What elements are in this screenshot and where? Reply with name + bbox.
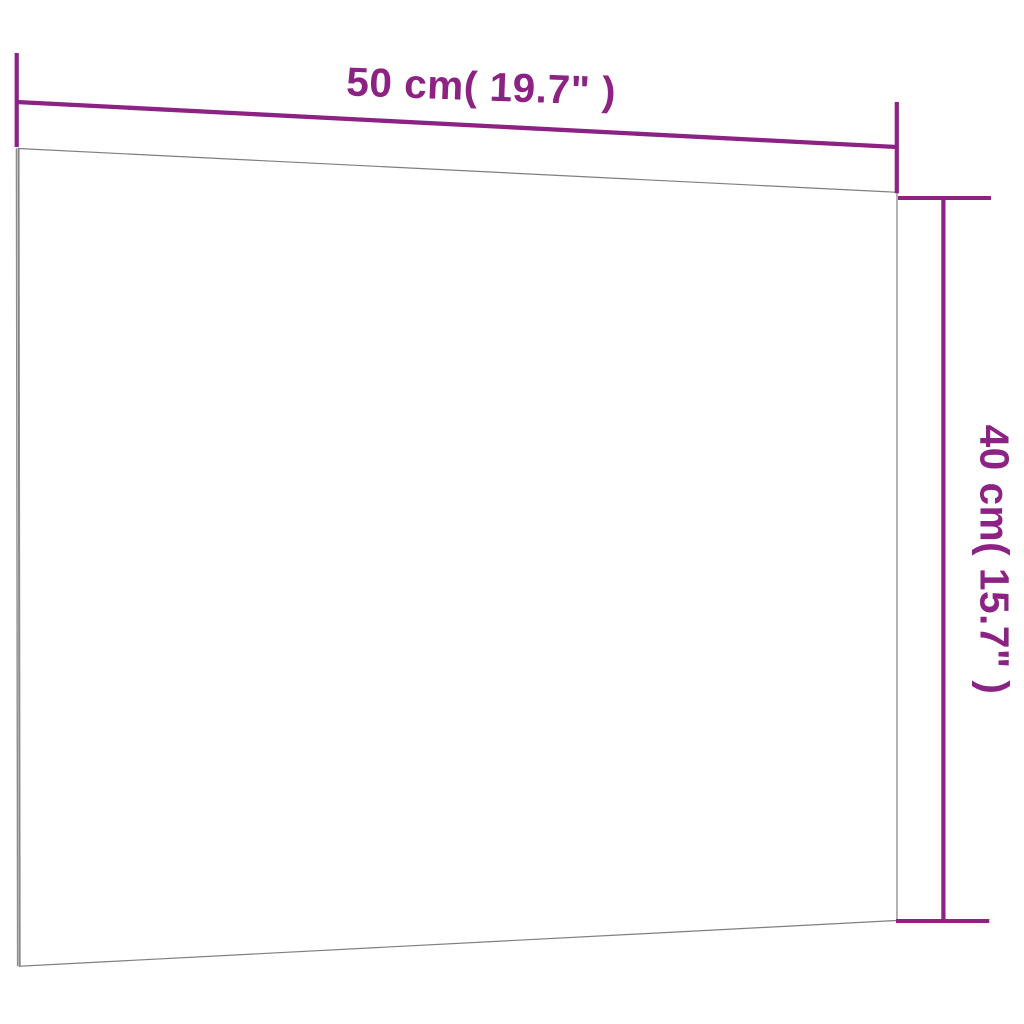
- svg-text:40 cm( 15.7" ): 40 cm( 15.7" ): [971, 425, 1017, 695]
